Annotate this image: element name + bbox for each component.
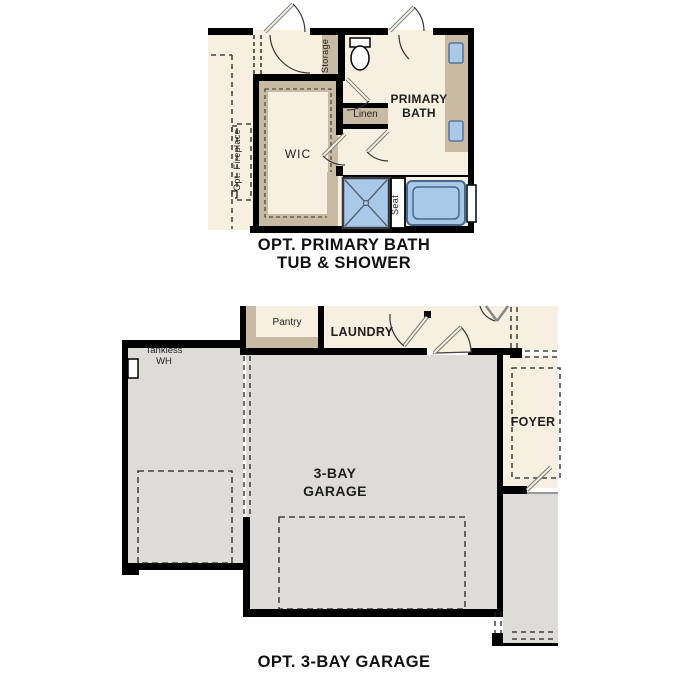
window (467, 185, 476, 222)
floor-plan-sheet: Storage PRIMARY BATH Linen WIC Opt. Fire… (0, 0, 687, 687)
garage-bay-floor (128, 348, 243, 564)
seat-label: Seat (390, 186, 405, 224)
primary-bath-caption-line1: OPT. PRIMARY BATH (213, 236, 475, 255)
tankless-wh-box (128, 359, 138, 378)
primary-bath-label: PRIMARY BATH (387, 92, 451, 120)
laundry-label: LAUNDRY (328, 325, 396, 339)
garage-floor (246, 355, 497, 610)
toilet-icon (350, 38, 370, 70)
garage-caption: OPT. 3-BAY GARAGE (213, 653, 475, 672)
linen-label: Linen (343, 109, 388, 120)
foyer-label: FOYER (506, 415, 560, 429)
shower-icon (343, 178, 389, 228)
garage-label: 3-BAY GARAGE (299, 464, 371, 500)
tankless-wh-label: Tankless WH (140, 345, 188, 367)
storage-label: Storage (320, 36, 337, 76)
tub-icon (407, 181, 465, 225)
opt-fireplace-label: Opt. Fireplace (232, 122, 245, 198)
pantry-label: Pantry (256, 317, 318, 328)
wic-label: WIC (270, 147, 326, 161)
primary-bath-caption-line2: TUB & SHOWER (213, 254, 475, 273)
floor-plan-graphics (0, 0, 687, 687)
sink-icon (449, 121, 463, 141)
porch-floor (503, 494, 558, 646)
sink-icon (449, 43, 463, 63)
